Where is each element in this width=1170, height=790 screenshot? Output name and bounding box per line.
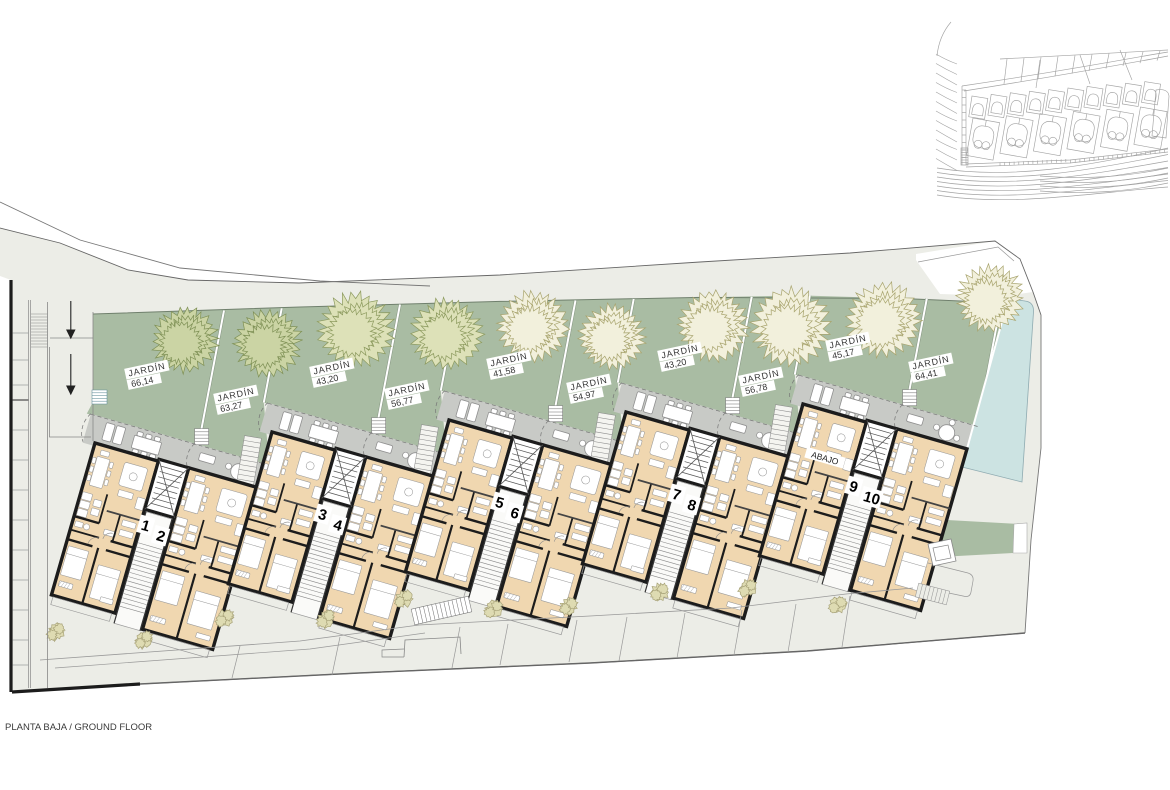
svg-text:PLANTA BAJA / GROUND FLOOR: PLANTA BAJA / GROUND FLOOR	[5, 722, 152, 733]
